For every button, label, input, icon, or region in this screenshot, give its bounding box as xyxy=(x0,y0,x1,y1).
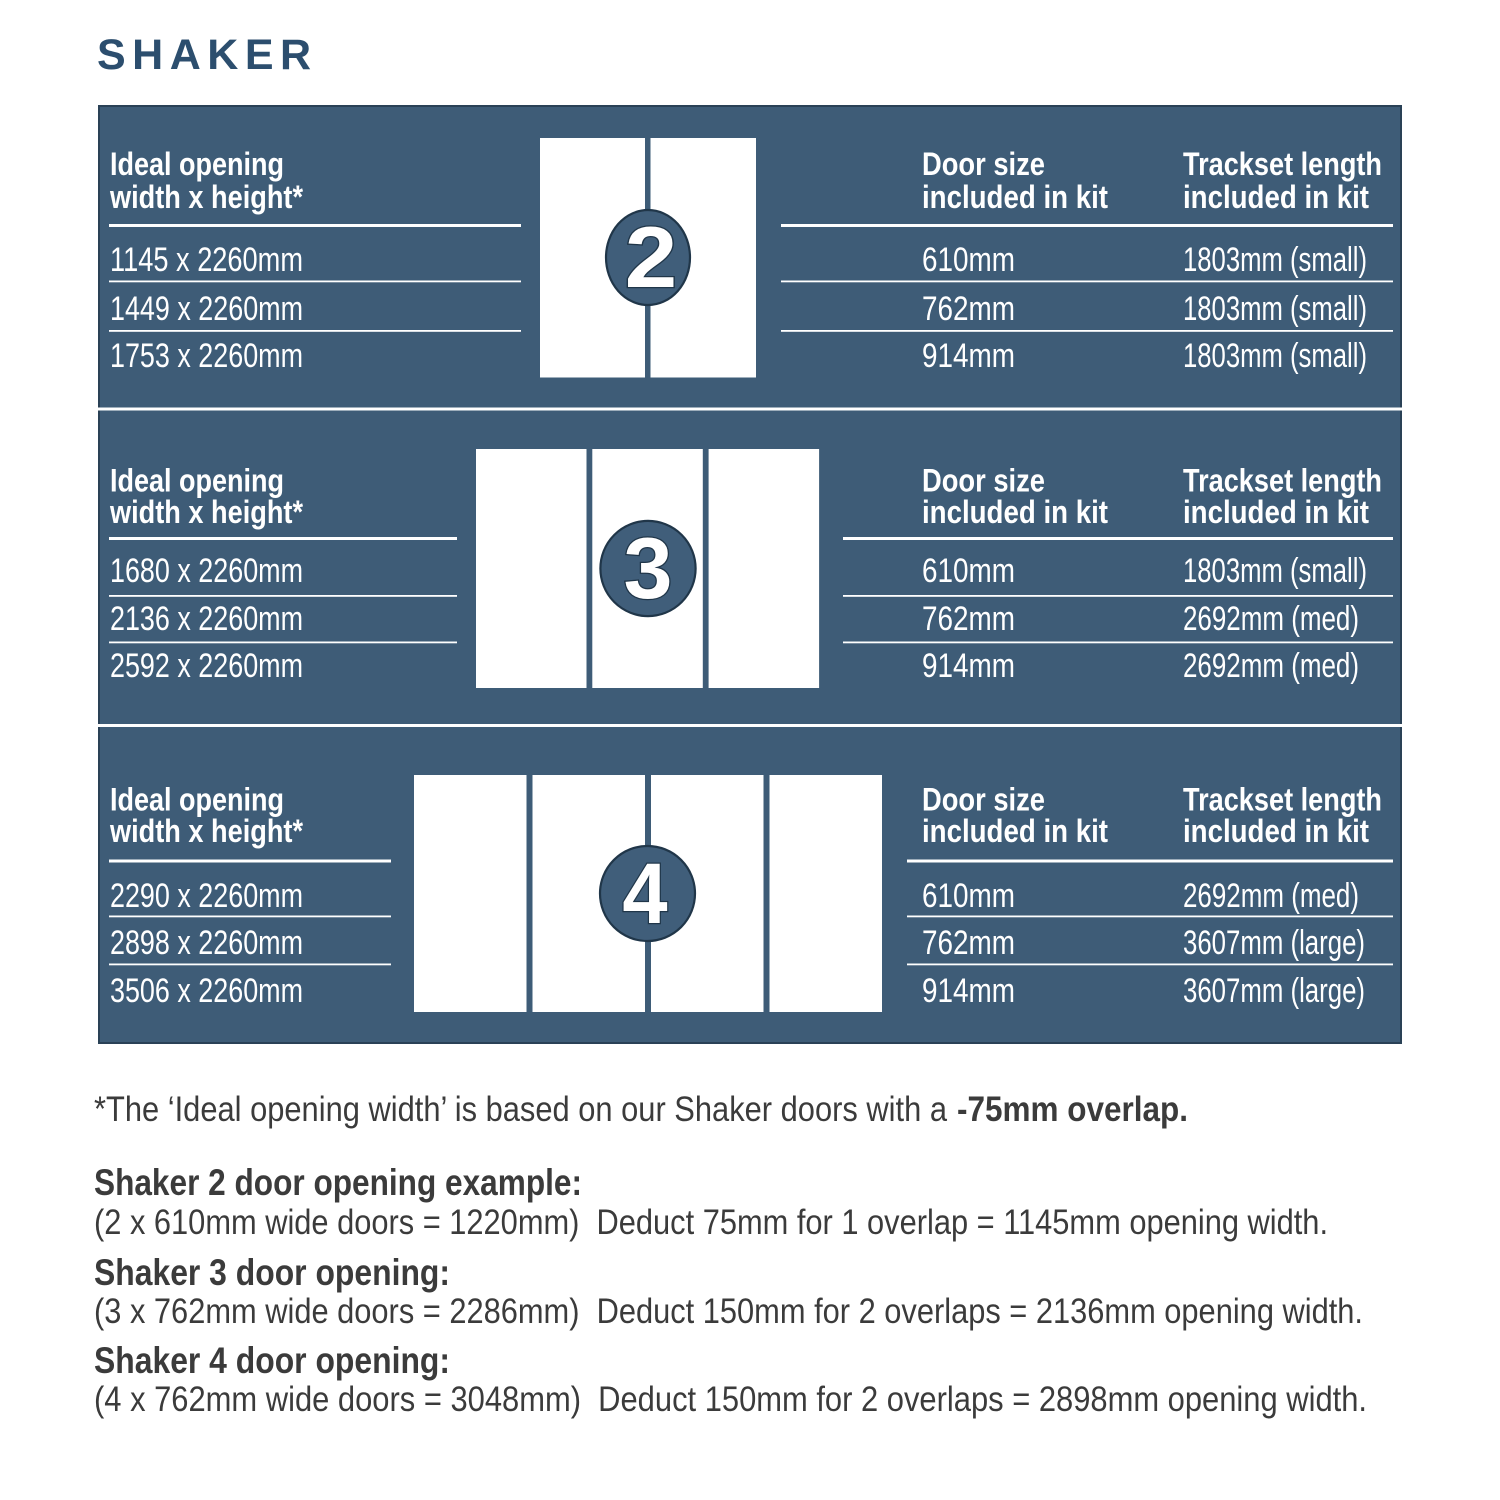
svg-text:width x height*: width x height* xyxy=(109,813,303,849)
svg-text:2898 x 2260mm: 2898 x 2260mm xyxy=(110,924,303,962)
svg-text:1803mm (small): 1803mm (small) xyxy=(1183,290,1367,328)
svg-text:Shaker 2 door opening example:: Shaker 2 door opening example: xyxy=(94,1162,582,1203)
svg-text:width x height*: width x height* xyxy=(109,179,303,215)
svg-text:3607mm (large): 3607mm (large) xyxy=(1183,972,1365,1010)
svg-text:SHAKER: SHAKER xyxy=(97,31,318,79)
svg-text:3: 3 xyxy=(624,521,673,617)
svg-text:2136 x 2260mm: 2136 x 2260mm xyxy=(110,600,303,638)
svg-text:3506 x 2260mm: 3506 x 2260mm xyxy=(110,972,303,1010)
svg-text:610mm: 610mm xyxy=(922,552,1015,590)
svg-text:included in kit: included in kit xyxy=(922,179,1108,215)
svg-text:4: 4 xyxy=(622,846,667,942)
svg-text:1145 x 2260mm: 1145 x 2260mm xyxy=(110,241,303,279)
svg-text:*The ‘Ideal opening width’ is: *The ‘Ideal opening width’ is based on o… xyxy=(94,1090,947,1129)
svg-text:914mm: 914mm xyxy=(922,647,1015,685)
svg-text:included in kit: included in kit xyxy=(922,494,1108,530)
svg-text:762mm: 762mm xyxy=(922,600,1015,638)
svg-text:762mm: 762mm xyxy=(922,290,1015,328)
svg-text:2692mm (med): 2692mm (med) xyxy=(1183,647,1359,685)
svg-text:914mm: 914mm xyxy=(922,337,1015,375)
svg-text:2692mm (med): 2692mm (med) xyxy=(1183,877,1359,915)
svg-text:610mm: 610mm xyxy=(922,877,1015,915)
svg-text:included in kit: included in kit xyxy=(1183,179,1369,215)
svg-text:Trackset length: Trackset length xyxy=(1183,146,1382,182)
svg-text:included in kit: included in kit xyxy=(1183,494,1369,530)
svg-text:Door size: Door size xyxy=(922,146,1045,182)
svg-text:width x height*: width x height* xyxy=(109,494,303,530)
svg-text:610mm: 610mm xyxy=(922,241,1015,279)
svg-text:762mm: 762mm xyxy=(922,924,1015,962)
svg-text:(2 x 610mm wide doors = 1220mm: (2 x 610mm wide doors = 1220mm) Deduct 7… xyxy=(94,1203,1328,1242)
svg-text:2290 x 2260mm: 2290 x 2260mm xyxy=(110,877,303,915)
svg-text:1803mm (small): 1803mm (small) xyxy=(1183,337,1367,375)
svg-text:1803mm (small): 1803mm (small) xyxy=(1183,241,1367,279)
svg-text:Shaker 3 door opening:: Shaker 3 door opening: xyxy=(94,1252,450,1293)
svg-text:-75mm overlap.: -75mm overlap. xyxy=(957,1090,1188,1129)
svg-text:1753 x 2260mm: 1753 x 2260mm xyxy=(110,337,303,375)
svg-text:914mm: 914mm xyxy=(922,972,1015,1010)
svg-text:Shaker 4 door opening:: Shaker 4 door opening: xyxy=(94,1340,450,1381)
svg-text:1803mm (small): 1803mm (small) xyxy=(1183,552,1367,590)
svg-text:2592 x 2260mm: 2592 x 2260mm xyxy=(110,647,303,685)
svg-text:(3 x 762mm wide doors = 2286mm: (3 x 762mm wide doors = 2286mm) Deduct 1… xyxy=(94,1292,1363,1331)
svg-text:Ideal opening: Ideal opening xyxy=(110,146,284,182)
svg-text:2692mm (med): 2692mm (med) xyxy=(1183,600,1359,638)
svg-text:2: 2 xyxy=(625,210,678,306)
svg-text:included in kit: included in kit xyxy=(922,813,1108,849)
svg-text:3607mm (large): 3607mm (large) xyxy=(1183,924,1365,962)
svg-text:(4 x 762mm wide doors = 3048mm: (4 x 762mm wide doors = 3048mm) Deduct 1… xyxy=(94,1380,1367,1419)
svg-text:1449 x 2260mm: 1449 x 2260mm xyxy=(110,290,303,328)
svg-text:included in kit: included in kit xyxy=(1183,813,1369,849)
svg-text:1680 x 2260mm: 1680 x 2260mm xyxy=(110,552,303,590)
